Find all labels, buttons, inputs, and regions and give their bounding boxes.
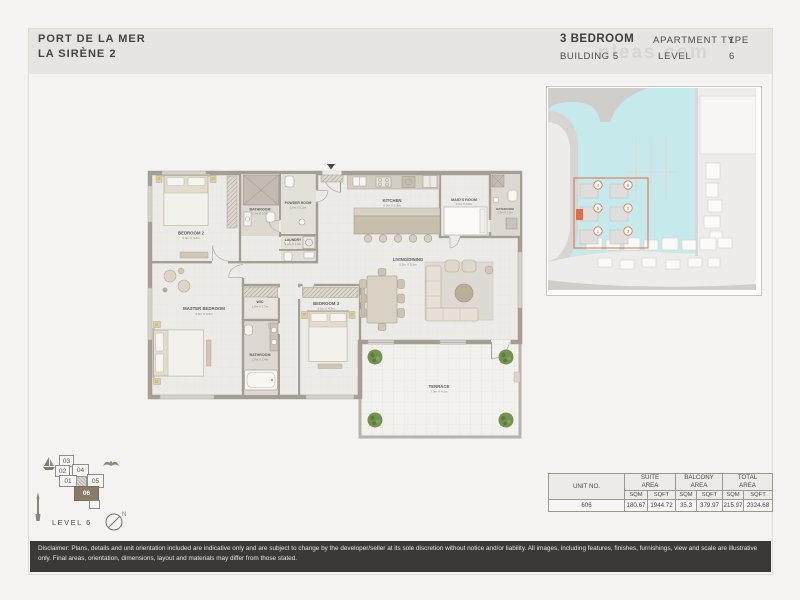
kitchen-furniture — [348, 175, 441, 242]
room-label-kitchen: KITCHEN — [382, 198, 401, 203]
building-number: 4 — [597, 183, 600, 189]
room-label-bathroom-master: BATHROOM — [250, 353, 271, 357]
large-building — [700, 96, 756, 154]
compass-north-label: N — [122, 512, 126, 518]
site-map-panel: 4 6 5 2 1 3 — [546, 86, 762, 296]
room-dims-powder: 1.6m X 1.5m — [290, 206, 307, 210]
cell-total-sqft: 2324.68 — [744, 500, 773, 512]
room-label-powder: POWDER ROOM — [285, 201, 312, 205]
room-label-terrace: TERRACE — [429, 384, 450, 389]
room-dims-bedroom2: 4.0m X 4.4m — [182, 236, 200, 240]
room-label-bedroom2: BEDROOM 2 — [178, 231, 205, 236]
bedroom3-furniture — [302, 310, 356, 369]
floor-plan: BEDROOM 2 4.0m X 4.4m BATHROOM 1.9m X 2.… — [140, 160, 532, 447]
sub-total-sqm: SQM — [723, 491, 744, 500]
room-label-master-bedroom: MASTER BEDROOM — [183, 306, 225, 311]
col-total-area: TOTAL AREA — [723, 474, 773, 491]
sub-suite-sqft: SQFT — [648, 491, 676, 500]
disclaimer-bar: Disclaimer: Plans, details and unit orie… — [30, 541, 771, 572]
room-dims-maids-room: 2.0m X 3.0m — [456, 202, 473, 206]
cell-unit-no: 606 — [549, 500, 625, 512]
cell-balcony-sqft: 379.97 — [697, 500, 723, 512]
room-label-living-dining: LIVING/DINING — [393, 257, 424, 262]
room-dims-bathroom-maids: 1.5m X 2.0m — [497, 211, 513, 215]
sub-balcony-sqft: SQFT — [697, 491, 723, 500]
col-unit-no: UNIT NO. — [549, 474, 625, 500]
building-number: 2 — [627, 206, 630, 212]
cell-suite-sqm: 180.67 — [625, 500, 648, 512]
sailboat-icon — [42, 456, 56, 472]
unit-key-diagram: 03 02 04 01 05 06 LEVEL 6 N — [30, 448, 155, 543]
landmark-tower-icon — [33, 492, 43, 522]
room-dims-bathroom-master: 1.8m X 2.4m — [252, 358, 269, 362]
room-dims-master-bedroom: 4.0m X 4.5m — [195, 312, 213, 316]
unit-key-box-06-highlighted: 06 — [74, 486, 99, 501]
watermark: nleas.com — [598, 42, 709, 64]
room-dims-laundry: 1.6m X 1.2m — [285, 242, 302, 246]
compass-icon: N — [103, 508, 129, 534]
col-suite-area: SUITE AREA — [625, 474, 676, 491]
sub-total-sqft: SQFT — [744, 491, 773, 500]
building-number: 3 — [627, 229, 630, 235]
building-number: 5 — [597, 206, 600, 212]
room-label-bathroom-maids: BATHROOM — [496, 207, 514, 211]
col-balcony-area: BALCONY AREA — [676, 474, 723, 491]
room-label-wic: WIC — [257, 300, 264, 304]
building-number: 6 — [627, 183, 630, 189]
highlighted-building — [576, 209, 583, 220]
room-dims-living-dining: 5.2m X 5.5m — [399, 263, 417, 267]
room-dims-terrace: 7.0m X 4.2m — [430, 390, 448, 394]
sub-suite-sqm: SQM — [625, 491, 648, 500]
room-dims-kitchen: 4.3m X 2.8m — [383, 204, 401, 208]
unit-key-box-small — [89, 500, 100, 509]
area-table-wrap: UNIT NO. SUITE AREA BALCONY AREA TOTAL A… — [548, 473, 773, 512]
level-value: 6 — [729, 51, 734, 62]
entry-arrow-icon — [327, 164, 335, 170]
room-label-bedroom3: BEDROOM 3 — [313, 301, 340, 306]
table-row: 606 180.67 1944.72 35.3 379.97 215.97 23… — [549, 500, 773, 512]
room-dims-bedroom3: 3.6m X 4.7m — [317, 307, 335, 311]
project-subtitle: LA SIRÈNE 2 — [38, 48, 116, 60]
room-dims-bathroom2: 1.9m X 2.7m — [252, 212, 269, 216]
level-key-text: LEVEL 6 — [52, 518, 92, 527]
cell-total-sqm: 215.97 — [723, 500, 744, 512]
building-number: 1 — [597, 229, 600, 235]
sub-balcony-sqm: SQM — [676, 491, 697, 500]
cell-balcony-sqm: 35.3 — [676, 500, 697, 512]
cell-suite-sqft: 1944.72 — [648, 500, 676, 512]
area-table: UNIT NO. SUITE AREA BALCONY AREA TOTAL A… — [548, 473, 773, 512]
site-map: 4 6 5 2 1 3 — [548, 88, 756, 290]
falcon-icon — [102, 458, 120, 468]
project-title: PORT DE LA MER — [38, 33, 146, 45]
room-dims-wic: 1.8m X 1.7m — [252, 305, 269, 309]
apartment-type-value: 1 — [729, 35, 734, 46]
